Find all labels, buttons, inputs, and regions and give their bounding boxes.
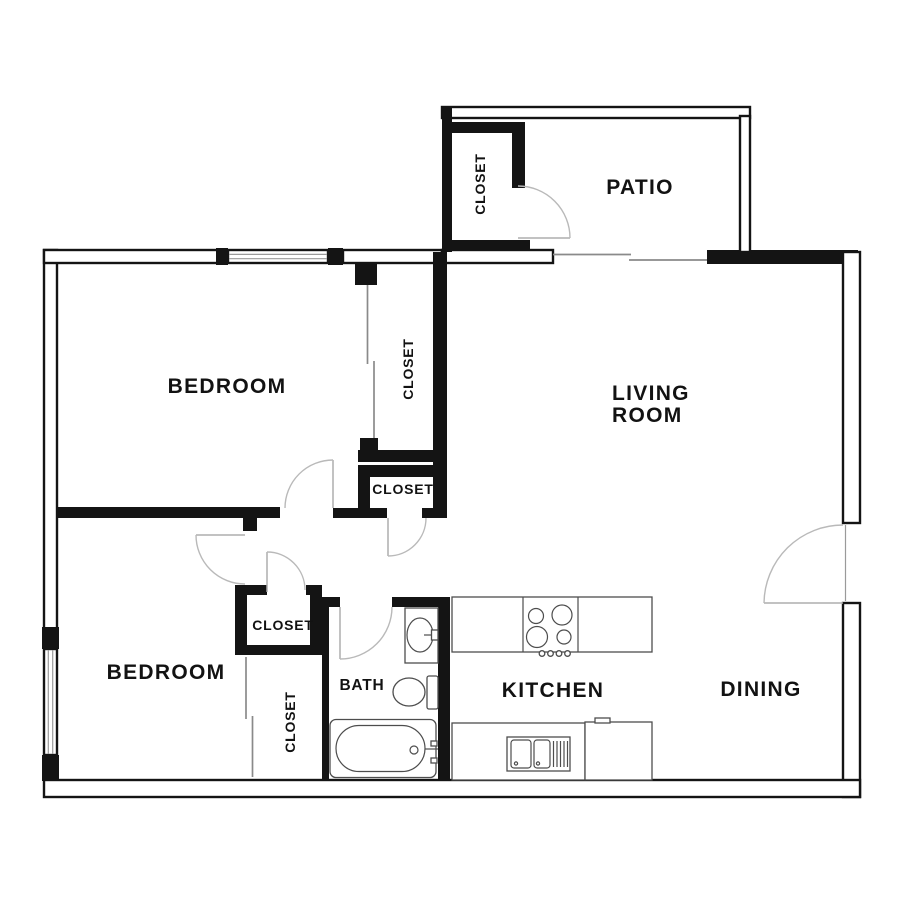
living-room-label-line1: LIVING [612,382,690,405]
faucet [432,630,439,640]
toilet-bowl [393,678,425,706]
wall-segment [343,250,442,263]
bath-wall [322,597,340,607]
patio-wall [442,107,750,118]
cooktop-knob [548,651,554,657]
wall-segment [707,250,858,264]
toilet-tank [427,676,438,709]
door-arc [764,525,843,603]
wall-segment [843,603,860,797]
lower-hall-closet-label: CLOSET [252,617,314,633]
wall-segment [44,250,57,630]
wall-segment [44,250,218,263]
window-jamb [42,627,59,649]
refrigerator [585,722,652,780]
bathtub [330,720,436,778]
closet-wall-stub [355,263,377,285]
kitchen-label: KITCHEN [502,679,604,702]
door-arc [267,552,305,590]
closet-wall-stub [360,438,378,452]
door-hinge-stub [243,518,257,531]
refrigerator-handle [595,718,610,723]
door-arc [340,607,392,659]
closet-wall [235,585,247,655]
living-room-label-line2: ROOM [612,404,683,427]
patio-label: PATIO [606,176,674,199]
patio-closet-wall [512,122,525,188]
patio-wall [740,116,750,252]
closet-wall [235,585,267,595]
cooktop-knob [565,651,571,657]
dining-label: DINING [720,678,801,701]
bath-wall [438,597,450,780]
window-jamb [216,248,228,265]
cooktop-knob [556,651,562,657]
patio-closet-wall [442,240,530,251]
floor-plan-drawing: PATIO CLOSET BEDROOM CLOSET LIVINGROOM C… [0,0,900,900]
hall-closet-label: CLOSET [372,481,434,497]
door-arc [285,460,333,508]
door-arc [388,518,426,556]
bedroom-bottom-closet-label: CLOSET [282,691,298,753]
bedroom-bottom-label: BEDROOM [107,661,226,684]
window-left [44,649,57,755]
wall-segment [442,250,553,263]
wall-segment [433,252,447,518]
bathtub-tap [431,758,437,763]
window-top [228,250,328,263]
floor-plan: PATIO CLOSET BEDROOM CLOSET LIVINGROOM C… [0,0,900,900]
bedroom-top-closet-label: CLOSET [400,338,416,400]
kitchen-counter [452,597,652,652]
wall-segment [57,507,280,518]
wall-segment [44,780,860,797]
patio-closet-label: CLOSET [472,153,488,215]
bath-label: BATH [339,677,384,694]
bathtub-tap [431,741,437,746]
door-arc [518,186,570,238]
door-arc [196,535,245,584]
closet-wall [358,465,370,518]
window-jamb [328,248,343,265]
patio-wall [442,107,452,252]
bedroom-top-label: BEDROOM [168,375,287,398]
living-room-label: LIVINGROOM [612,382,690,427]
window-jamb [42,755,59,781]
wall-segment [843,252,860,523]
closet-wall [235,645,322,655]
cooktop-knob [539,651,545,657]
bath-wall [322,597,329,780]
